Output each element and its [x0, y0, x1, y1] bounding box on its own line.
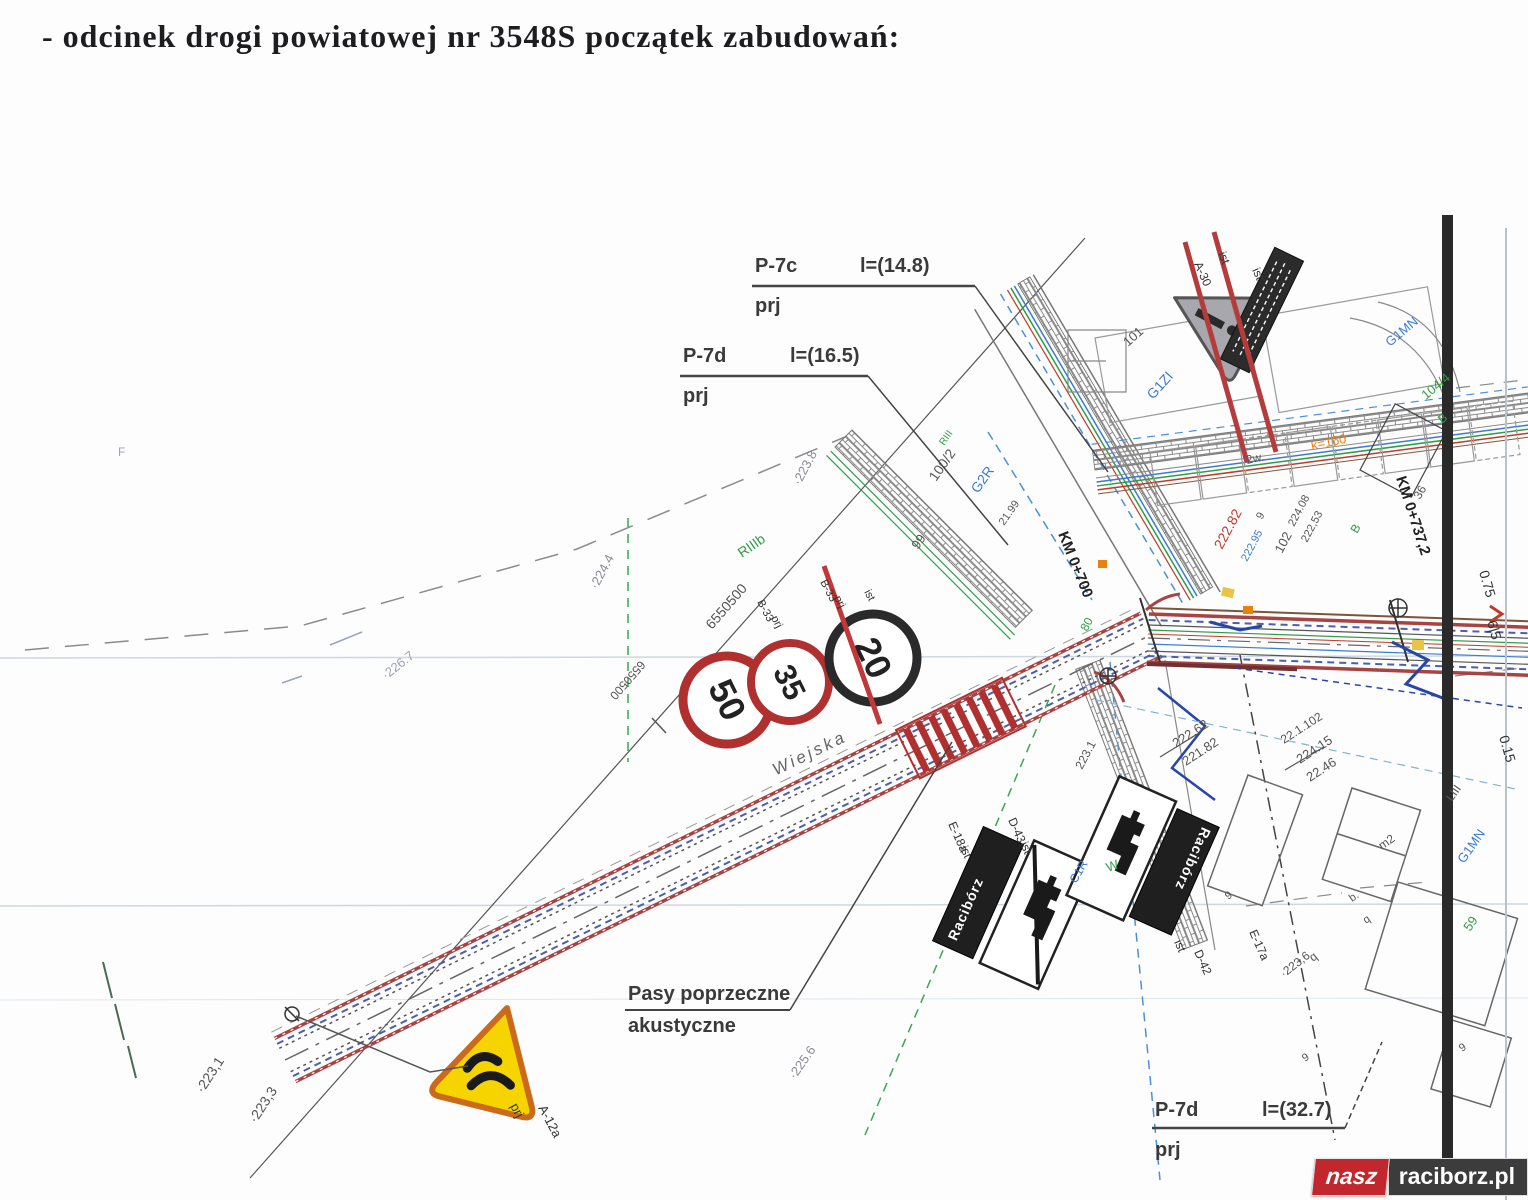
- map-label: ·225.6: [785, 1043, 818, 1082]
- watermark-raciborz: raciborz.pl: [1388, 1158, 1528, 1196]
- site-plan-map: Wiejska: [0, 0, 1528, 1200]
- east-road: [1147, 608, 1528, 677]
- map-label: ·224.4: [586, 552, 617, 592]
- map-label: 222.82: [1211, 506, 1245, 552]
- map-label: ist: [861, 588, 877, 603]
- street-name-label: Wiejska: [769, 727, 850, 779]
- svg-text:prj: prj: [683, 385, 709, 407]
- svg-text:P-7d: P-7d: [1155, 1099, 1198, 1121]
- map-label: 6550500: [702, 580, 750, 632]
- map-label: G1ZI: [1143, 368, 1176, 402]
- svg-text:l=(14.8): l=(14.8): [860, 255, 929, 277]
- map-label: 6|5: [1484, 618, 1505, 641]
- watermark-nasz: nasz: [1311, 1158, 1390, 1196]
- a12a-leader-line: [296, 1016, 468, 1072]
- svg-text:Pasy poprzeczne: Pasy poprzeczne: [628, 983, 790, 1005]
- junction-details: [1094, 560, 1522, 800]
- map-label: RIIIb: [735, 530, 769, 560]
- map-label: KM 0+700: [1054, 529, 1096, 600]
- map-label: 9: [1457, 1041, 1469, 1054]
- map-label: 9: [1300, 1051, 1312, 1064]
- watermark: nasz raciborz.pl: [1313, 1158, 1528, 1196]
- map-label: 0.75: [1476, 568, 1499, 599]
- speed-sign-group: 50 35 20: [683, 566, 917, 744]
- map-label: 102: [1271, 529, 1294, 555]
- map-label: ·223.8: [789, 448, 820, 488]
- map-label: 223.1: [1072, 738, 1099, 771]
- map-label: A-12a: [535, 1102, 565, 1140]
- map-label: 222.95: [1239, 528, 1265, 563]
- svg-text:akustyczne: akustyczne: [628, 1015, 736, 1037]
- map-label: G1MN: [1454, 826, 1488, 865]
- sidewalk-hatch-west: [827, 430, 1036, 639]
- map-label: F: [118, 445, 125, 459]
- map-label: RIII: [937, 429, 955, 448]
- svg-text:prj: prj: [755, 295, 781, 317]
- map-label: m2: [1376, 831, 1398, 852]
- map-label: E-17a: [1246, 928, 1272, 963]
- map-label: KM 0+737,2: [1392, 474, 1434, 557]
- scan-fold-bar: [1442, 215, 1453, 1180]
- map-label: 80: [1077, 615, 1096, 634]
- scanned-road-plan-page: - odcinek drogi powiatowej nr 3548S pocz…: [0, 0, 1528, 1200]
- map-label: 21.99: [997, 498, 1023, 527]
- map-label: G2R: [967, 463, 997, 496]
- callout-p7d-bottom: P-7d l=(32.7) prj: [1152, 1042, 1382, 1161]
- map-label: D-42: [1191, 948, 1215, 978]
- map-label: 59: [1460, 913, 1481, 933]
- svg-text:P-7d: P-7d: [683, 345, 726, 367]
- map-label: q: [1361, 913, 1373, 926]
- map-label: ·223,1: [192, 1053, 227, 1095]
- map-label: ·223,3: [245, 1083, 280, 1125]
- map-label: ·226.7: [379, 648, 417, 683]
- road-narrows-sign-a12a: [431, 995, 555, 1119]
- speed-limit-35-sign: 35: [751, 643, 829, 721]
- svg-text:prj: prj: [1155, 1139, 1181, 1161]
- svg-text:l=(32.7): l=(32.7): [1262, 1099, 1331, 1121]
- svg-text:l=(16.5): l=(16.5): [790, 345, 859, 367]
- map-label: B: [1347, 522, 1363, 536]
- map-label: 0.15: [1496, 733, 1519, 764]
- svg-text:P-7c: P-7c: [755, 255, 797, 277]
- map-label: 9: [1254, 510, 1267, 521]
- map-label: 101: [1120, 324, 1146, 350]
